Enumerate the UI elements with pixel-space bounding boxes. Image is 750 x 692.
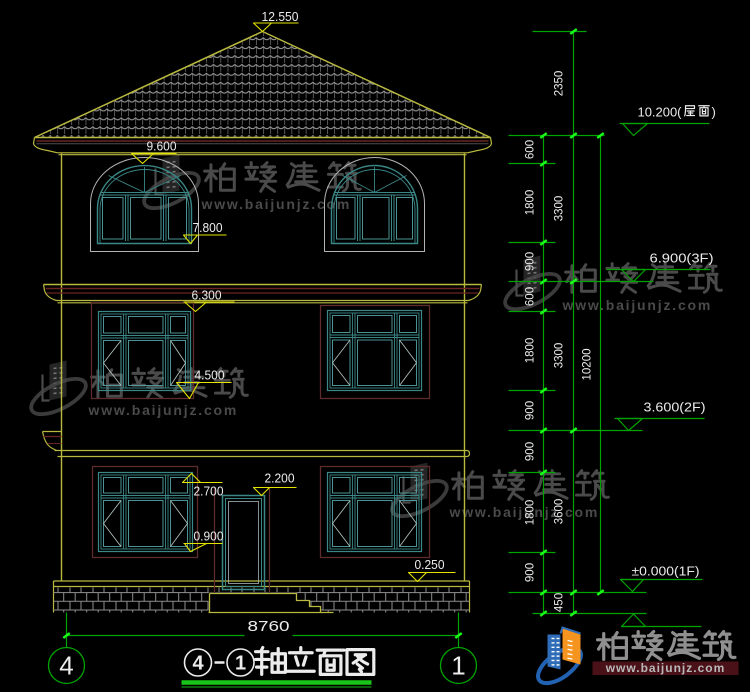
svg-text:900: 900 — [525, 563, 537, 582]
svg-text:1: 1 — [451, 651, 465, 681]
svg-text:1: 1 — [235, 653, 246, 675]
svg-text:0.250: 0.250 — [415, 558, 445, 572]
svg-text:2.200: 2.200 — [265, 472, 295, 486]
svg-text:600: 600 — [525, 140, 537, 159]
svg-text:7.800: 7.800 — [193, 221, 223, 235]
svg-text:4: 4 — [192, 653, 204, 675]
svg-text:450: 450 — [554, 593, 566, 612]
svg-text:): ) — [712, 105, 716, 120]
svg-text:10200: 10200 — [582, 349, 594, 381]
svg-text:10.200(: 10.200( — [638, 105, 683, 120]
svg-text:4.500: 4.500 — [195, 369, 225, 383]
svg-text:600: 600 — [525, 287, 537, 306]
svg-text:±0.000(1F): ±0.000(1F) — [632, 564, 700, 579]
svg-text:www.baijunjz.com: www.baijunjz.com — [605, 661, 726, 675]
svg-text:2350: 2350 — [554, 71, 566, 97]
svg-text:9.600: 9.600 — [147, 140, 177, 154]
svg-text:6.300: 6.300 — [192, 289, 222, 303]
svg-text:www.baijunjz.com: www.baijunjz.com — [88, 402, 239, 418]
svg-text:1800: 1800 — [525, 338, 537, 364]
svg-text:4: 4 — [59, 651, 73, 681]
svg-text:3300: 3300 — [554, 343, 566, 369]
svg-text:12.550: 12.550 — [262, 10, 299, 24]
svg-text:900: 900 — [525, 442, 537, 461]
svg-text:2.700: 2.700 — [194, 485, 224, 499]
svg-text:www.baijunjz.com: www.baijunjz.com — [201, 196, 352, 212]
svg-text:www.baijunjz.com: www.baijunjz.com — [562, 297, 713, 313]
svg-text:3.600(2F): 3.600(2F) — [644, 400, 706, 415]
svg-text:900: 900 — [525, 401, 537, 420]
svg-text:6.900(3F): 6.900(3F) — [650, 251, 714, 266]
svg-text:1800: 1800 — [525, 500, 537, 526]
svg-text:0.900: 0.900 — [194, 530, 224, 544]
svg-text:1800: 1800 — [525, 190, 537, 216]
svg-text:3300: 3300 — [554, 196, 566, 222]
svg-text:3600: 3600 — [554, 499, 566, 525]
svg-text:8760: 8760 — [248, 618, 290, 635]
svg-text:900: 900 — [525, 252, 537, 271]
